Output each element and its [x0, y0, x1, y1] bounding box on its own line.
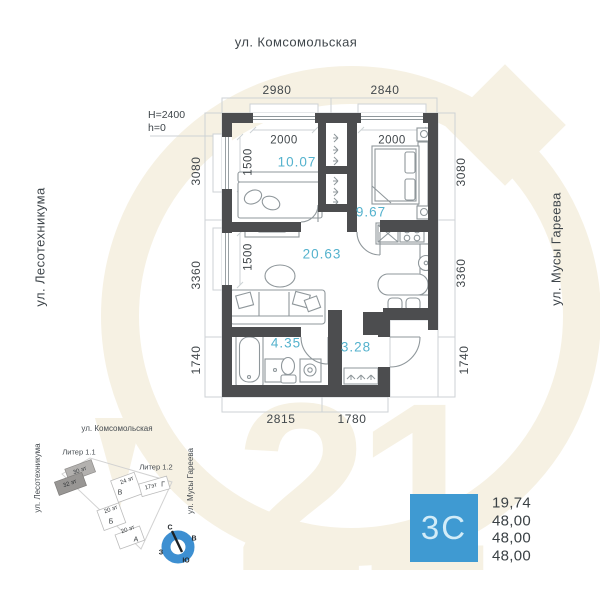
site-street-right: ул. Мусы Гареева: [187, 448, 195, 514]
area-hall: 3.28: [341, 340, 371, 354]
site-liter-2: Литер 1.2: [139, 463, 172, 471]
dim-right-1: 3080: [455, 157, 467, 186]
area-living: 20.63: [303, 247, 342, 261]
dim-bottom-1: 2815: [266, 413, 295, 425]
area-room1: 10.07: [278, 155, 317, 169]
summary-value-4: 48,00: [492, 548, 531, 565]
dim-left-2: 3360: [190, 260, 202, 289]
ledge-height-note: h=0: [148, 123, 166, 134]
apartment-type-badge: 3С: [410, 494, 478, 562]
dim-bedroom-width: 2000: [378, 135, 406, 147]
dim-left-3: 1740: [190, 345, 202, 374]
site-bldg-v-letter: В: [118, 490, 123, 497]
street-left-label: ул. Лесотехникума: [34, 187, 47, 306]
site-street-top: ул. Комсомольская: [81, 425, 152, 433]
dim-top-1: 2980: [262, 84, 291, 96]
dim-bottom-2: 1780: [337, 413, 366, 425]
compass-south-label: Ю: [182, 558, 189, 565]
room1-sofa: [238, 172, 322, 218]
apartment-type-label: 3С: [421, 509, 467, 547]
dim-living-window: 1500: [243, 243, 255, 271]
dim-top-2: 2840: [370, 84, 399, 96]
dim-right-3: 1740: [458, 345, 470, 374]
summary-value-1: 19,74: [492, 495, 531, 512]
site-street-left: ул. Лесотехникума: [34, 443, 42, 512]
street-top-label: ул. Комсомольская: [235, 36, 357, 49]
compass-west-label: З: [159, 550, 163, 557]
living-sofa: [230, 290, 325, 324]
dim-room1-width: 2000: [270, 135, 298, 147]
area-bathroom: 4.35: [271, 336, 301, 350]
apartment-floor-plan-page: 21: [0, 0, 600, 600]
dim-left-1: 3080: [190, 156, 202, 185]
summary-value-3: 48,00: [492, 530, 531, 547]
compass-north-label: С: [167, 525, 172, 532]
area-bedroom: 9.67: [356, 205, 386, 219]
dim-right-2: 3360: [455, 258, 467, 287]
summary-value-2: 48,00: [492, 513, 531, 530]
compass-east-label: В: [191, 536, 196, 543]
ceiling-height-note: H=2400: [148, 110, 185, 121]
site-liter-1: Литер 1.1: [62, 448, 95, 456]
coffee-table: [265, 265, 295, 287]
site-bldg-g-letter: Г: [161, 482, 165, 489]
site-bldg-b-letter: Б: [109, 519, 114, 526]
kitchen: [376, 223, 434, 311]
street-right-label: ул. Мусы Гареева: [550, 192, 563, 305]
dim-room1-window: 1500: [243, 148, 255, 176]
compass: [166, 531, 190, 559]
site-bldg-a-letter: А: [134, 537, 139, 544]
bathtub: [236, 333, 263, 386]
toilet: [281, 358, 296, 384]
